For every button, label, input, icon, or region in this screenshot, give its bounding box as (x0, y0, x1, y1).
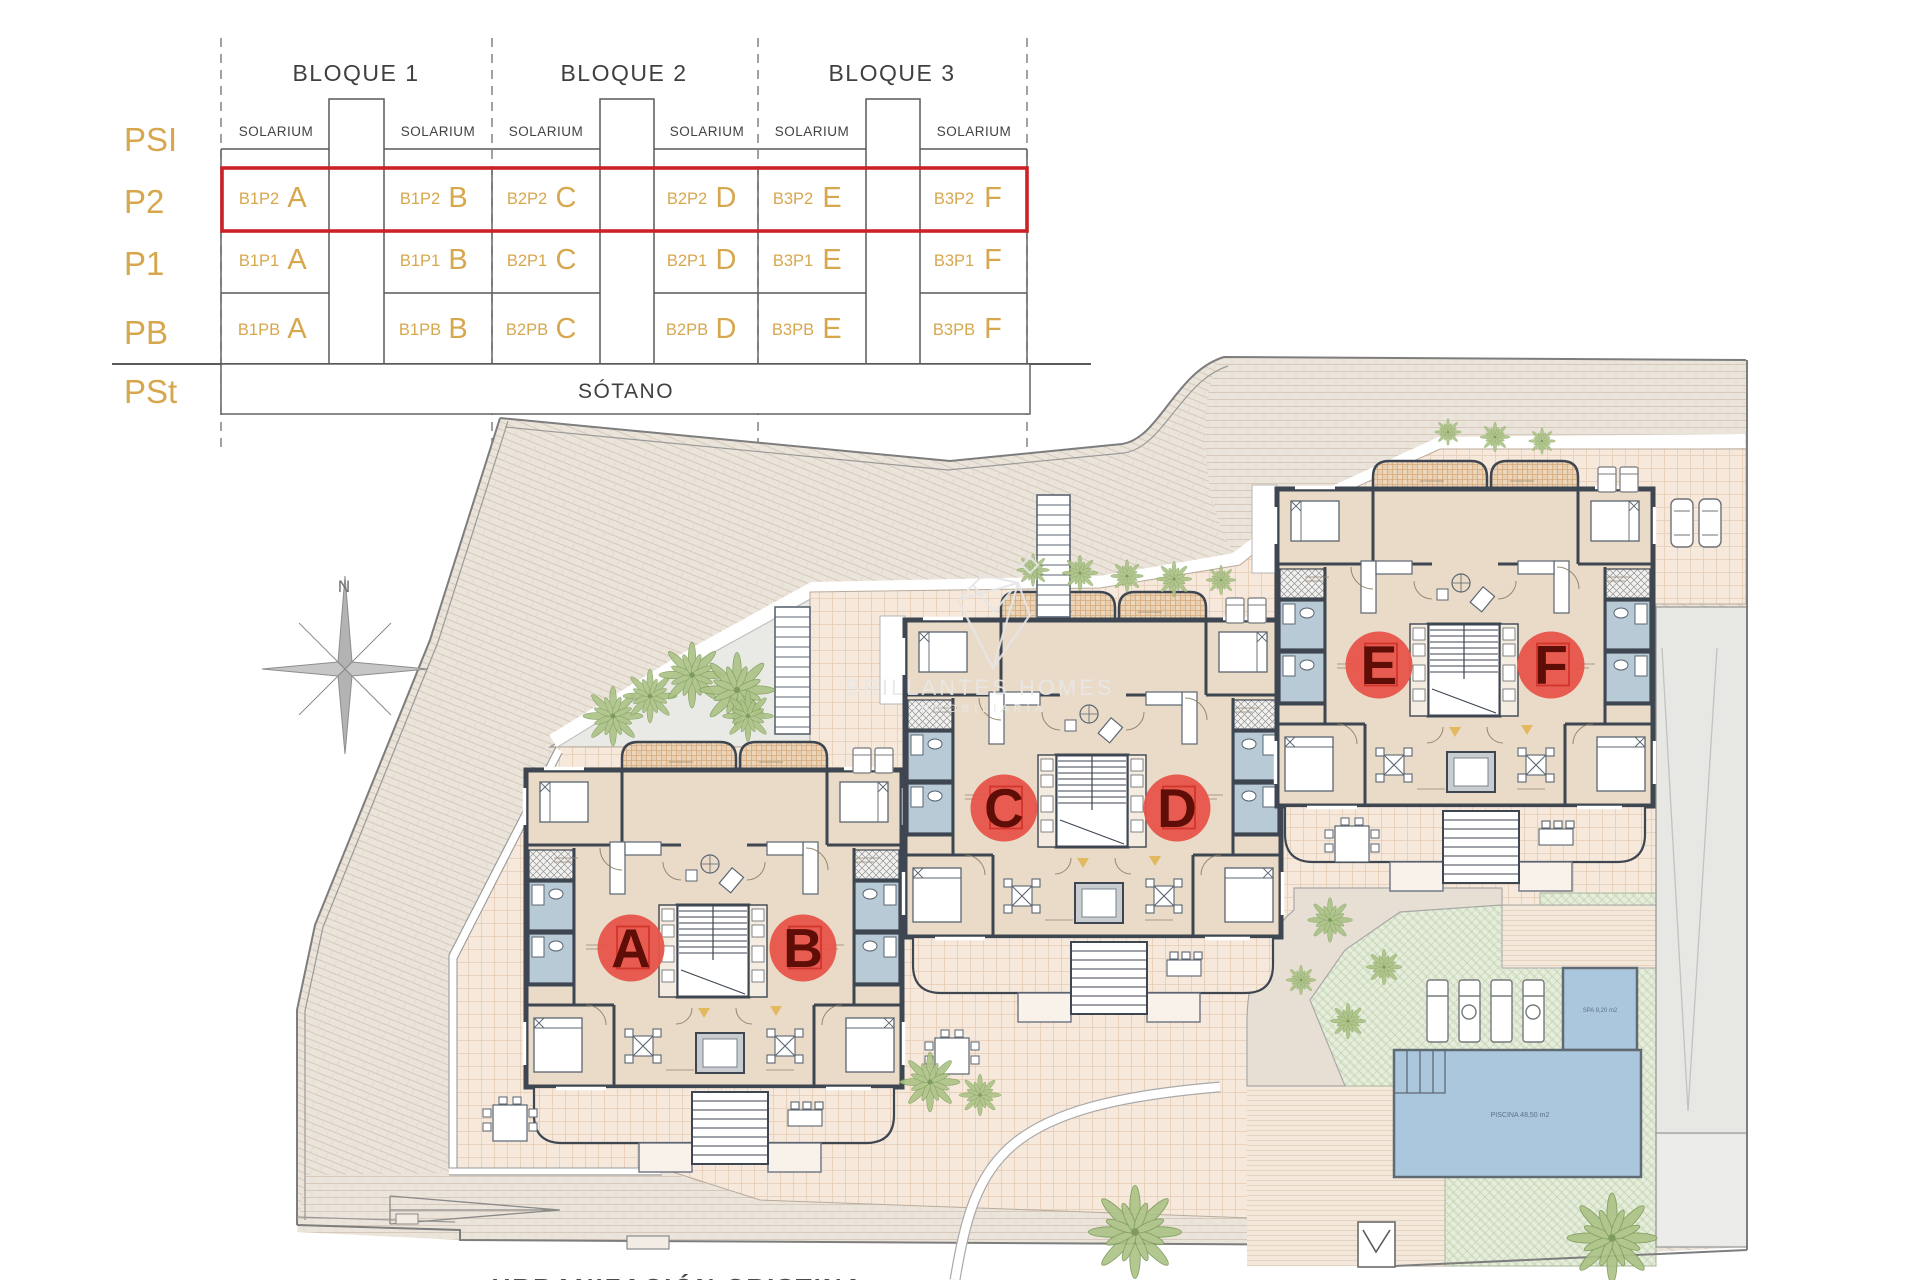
svg-text:B2PB: B2PB (666, 321, 708, 339)
svg-text:B1P1: B1P1 (400, 252, 440, 270)
svg-text:SOLARIUM: SOLARIUM (937, 124, 1012, 139)
svg-text:A: A (287, 313, 307, 345)
svg-text:BLOQUE 2: BLOQUE 2 (560, 60, 687, 86)
svg-text:URBANIZACIÓN CRISTINA: URBANIZACIÓN CRISTINA (492, 1273, 865, 1280)
svg-text:SPA 9,20 m2: SPA 9,20 m2 (1583, 1008, 1618, 1014)
svg-text:F: F (984, 182, 1002, 214)
svg-text:B1PB: B1PB (238, 321, 280, 339)
svg-text:D: D (716, 182, 737, 214)
svg-text:B2P1: B2P1 (667, 252, 707, 270)
svg-text:B: B (448, 182, 467, 214)
svg-text:BRILLANTES HOMES: BRILLANTES HOMES (845, 675, 1114, 700)
svg-text:B2P2: B2P2 (667, 190, 707, 208)
svg-text:PSt: PSt (124, 373, 177, 410)
svg-text:SOLARIUM: SOLARIUM (401, 124, 476, 139)
svg-text:PSI: PSI (124, 121, 177, 158)
svg-text:SOLARIUM: SOLARIUM (775, 124, 850, 139)
svg-text:F: F (1534, 634, 1568, 696)
svg-text:E: E (1361, 634, 1398, 696)
svg-text:B3P2: B3P2 (773, 190, 813, 208)
svg-text:D: D (716, 244, 737, 276)
svg-text:F: F (984, 244, 1002, 276)
svg-text:B1P2: B1P2 (400, 190, 440, 208)
svg-text:B3PB: B3PB (933, 321, 975, 339)
svg-text:D: D (1157, 777, 1197, 839)
svg-text:C: C (984, 777, 1024, 839)
svg-text:F: F (984, 313, 1002, 345)
svg-text:PB: PB (124, 314, 168, 351)
svg-text:C: C (556, 182, 577, 214)
svg-text:B: B (783, 917, 823, 979)
svg-text:B1P2: B1P2 (239, 190, 279, 208)
svg-text:E: E (822, 182, 841, 214)
svg-text:A: A (287, 244, 307, 276)
svg-text:B2PB: B2PB (506, 321, 548, 339)
svg-text:E: E (822, 313, 841, 345)
svg-text:A: A (611, 917, 651, 979)
svg-text:P1: P1 (124, 245, 164, 282)
svg-text:B: B (448, 244, 467, 276)
svg-text:INMOBILIARIA: INMOBILIARIA (913, 703, 1047, 715)
svg-text:BLOQUE 1: BLOQUE 1 (292, 60, 419, 86)
svg-text:SOLARIUM: SOLARIUM (239, 124, 314, 139)
svg-text:BLOQUE 3: BLOQUE 3 (828, 60, 955, 86)
svg-text:PISCINA 48,50 m2: PISCINA 48,50 m2 (1491, 1112, 1550, 1119)
svg-text:B: B (448, 313, 467, 345)
svg-text:D: D (716, 313, 737, 345)
svg-text:B2P2: B2P2 (507, 190, 547, 208)
svg-text:C: C (556, 244, 577, 276)
svg-text:B3PB: B3PB (772, 321, 814, 339)
svg-text:B3P1: B3P1 (773, 252, 813, 270)
svg-text:E: E (822, 244, 841, 276)
svg-text:P2: P2 (124, 183, 164, 220)
svg-text:B3P2: B3P2 (934, 190, 974, 208)
svg-text:SOLARIUM: SOLARIUM (509, 124, 584, 139)
svg-text:A: A (287, 182, 307, 214)
svg-text:N: N (338, 577, 350, 596)
svg-text:SÓTANO: SÓTANO (578, 380, 674, 403)
svg-text:B2P1: B2P1 (507, 252, 547, 270)
svg-text:B1P1: B1P1 (239, 252, 279, 270)
svg-text:SOLARIUM: SOLARIUM (670, 124, 745, 139)
svg-text:C: C (556, 313, 577, 345)
svg-text:B3P1: B3P1 (934, 252, 974, 270)
svg-text:B1PB: B1PB (399, 321, 441, 339)
